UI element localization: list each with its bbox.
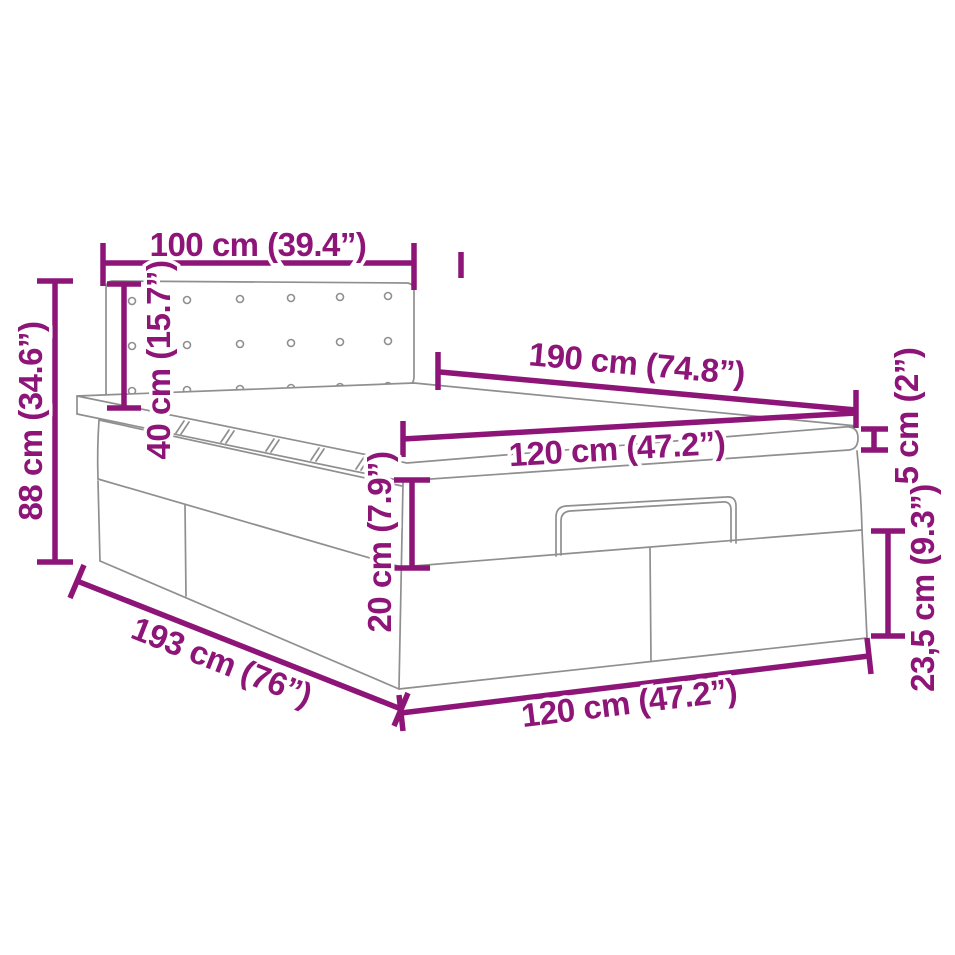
mattress-top-surface (77, 383, 857, 463)
upper-box-seam-side (98, 479, 401, 567)
dim-label-frame-length: 193 cm (76”) (127, 609, 318, 713)
dim-label-overall-height: 88 cm (34.6”) (12, 322, 49, 521)
headboard-button (184, 342, 191, 349)
bed-dimension-drawing: 100 cm (39.4”) 88 cm (34.6”) 40 cm (15.7… (0, 0, 955, 955)
headboard-button (129, 343, 136, 350)
headboard-button (184, 297, 191, 304)
upper-box-left-edge (98, 420, 99, 479)
headboard-button (288, 340, 295, 347)
dim-label-topper-thickness: 5 cm (2”) (888, 348, 925, 485)
dim-label-storage-height: 23,5 cm (9.3”) (904, 484, 941, 692)
lower-box-left-edge (98, 481, 100, 561)
upper-box-seam-foot (401, 530, 862, 567)
headboard-button (337, 339, 344, 346)
upper-box-right-edge (857, 451, 862, 530)
dim-tick (867, 638, 871, 674)
headboard-button (237, 341, 244, 348)
dim-label-frame-width: 120 cm (47.2”) (519, 671, 739, 734)
headboard-button (385, 338, 392, 345)
dim-label-headboard-width: 100 cm (39.4”) (150, 226, 367, 263)
front-corner-edge (399, 483, 403, 688)
dim-label-upper-frame-height: 20 cm (7.9”) (361, 451, 398, 632)
headboard-button (288, 295, 295, 302)
lower-box-right-edge (862, 530, 867, 638)
headboard-button (385, 293, 392, 300)
headboard-button (129, 298, 136, 305)
headboard-button (237, 296, 244, 303)
dimension-annotations: 100 cm (39.4”) 88 cm (34.6”) 40 cm (15.7… (12, 226, 941, 734)
lower-box-divider-foot (650, 548, 651, 661)
dimension-diagram: 100 cm (39.4”) 88 cm (34.6”) 40 cm (15.7… (0, 0, 955, 955)
dim-line-frame-length (77, 581, 401, 709)
lower-box-divider-side (185, 505, 186, 596)
headboard-button (337, 294, 344, 301)
dim-label-headboard-height: 40 cm (15.7”) (140, 261, 177, 460)
